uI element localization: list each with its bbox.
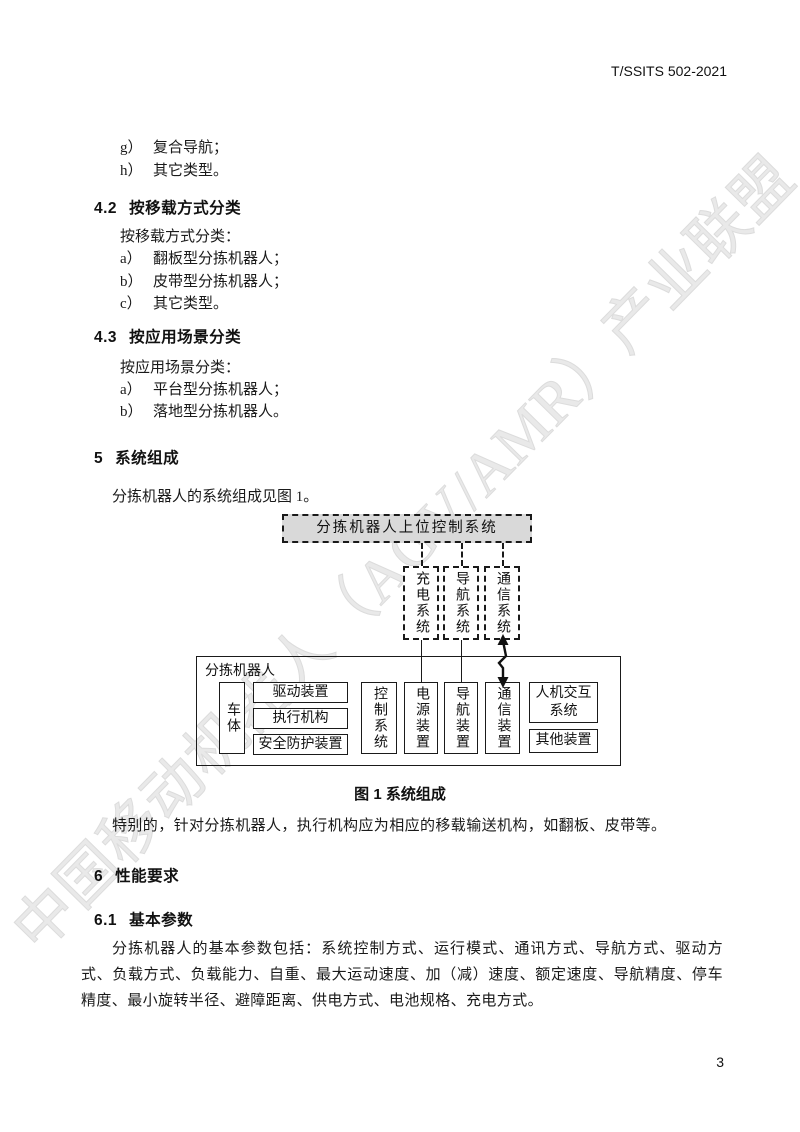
list-item-g: g）复合导航； [120,138,228,158]
actuator-box: 执行机构 [253,708,348,729]
safety-protection-box: 安全防护装置 [253,734,348,755]
list-item-a: a）翻板型分拣机器人； [120,249,288,269]
heading-title: 基本参数 [129,912,193,929]
list-text: 其它类型。 [153,296,228,312]
heading-number: 5 [94,450,103,468]
charging-system-box: 充电系统 [403,566,439,640]
list-text: 复合导航； [153,140,228,156]
hmi-system-box: 人机交互系统 [529,682,598,723]
figure-caption: 图 1 系统组成 [0,783,800,804]
navigation-system-box: 导航系统 [443,566,479,640]
control-system-box: 控制系统 [361,682,397,754]
sorting-robot-label: 分拣机器人 [205,660,275,680]
list-item-a2: a）平台型分拣机器人； [120,380,288,400]
dashed-connector-navigation [461,543,463,566]
heading-title: 系统组成 [115,450,179,467]
document-page: 中国移动机器人（AGV/AMR）产业联盟 T/SSITS 502-2021 g）… [0,0,800,1132]
vehicle-body-box: 车体 [219,682,245,754]
list-marker: b） [120,402,153,422]
communication-device-box: 通信装置 [485,682,520,754]
upper-control-system-box: 分拣机器人上位控制系统 [282,514,532,543]
dashed-connector-communication [502,543,504,566]
list-text: 翻板型分拣机器人； [153,251,288,267]
list-text: 落地型分拣机器人。 [153,404,288,420]
heading-4-2: 4.2按移载方式分类 [94,196,241,218]
list-marker: b） [120,272,153,292]
navigation-device-box: 导航装置 [444,682,478,754]
power-device-box: 电源装置 [404,682,438,754]
paragraph-4-3-intro: 按应用场景分类： [120,358,240,378]
list-item-b: b）皮带型分拣机器人； [120,272,288,292]
heading-title: 性能要求 [115,868,179,885]
heading-number: 4.2 [94,200,117,218]
list-marker: a） [120,380,153,400]
list-item-c: c）其它类型。 [120,294,228,314]
list-marker: a） [120,249,153,269]
list-text: 平台型分拣机器人； [153,382,288,398]
heading-number: 6.1 [94,912,117,930]
heading-6: 6性能要求 [94,864,179,886]
wireless-link-arrow [491,634,515,688]
paragraph-5-intro: 分拣机器人的系统组成见图 1。 [112,487,318,507]
heading-5: 5系统组成 [94,446,179,468]
heading-number: 4.3 [94,329,117,347]
heading-number: 6 [94,868,103,886]
doc-code-header: T/SSITS 502-2021 [611,63,727,79]
heading-4-3: 4.3按应用场景分类 [94,325,241,347]
list-text: 皮带型分拣机器人； [153,274,288,290]
list-marker: g） [120,138,153,158]
heading-6-1: 6.1基本参数 [94,908,193,930]
other-device-box: 其他装置 [529,729,598,753]
list-marker: c） [120,294,153,314]
paragraph-basic-parameters: 分拣机器人的基本参数包括：系统控制方式、运行模式、通讯方式、导航方式、驱动方式、… [81,936,723,1014]
heading-title: 按应用场景分类 [129,329,241,346]
heading-title: 按移载方式分类 [129,200,241,217]
list-item-b2: b）落地型分拣机器人。 [120,402,288,422]
list-text: 其它类型。 [153,163,228,179]
paragraph-4-2-intro: 按移载方式分类： [120,227,240,247]
page-number: 3 [716,1054,724,1070]
dashed-connector-charging [421,543,423,566]
paragraph-note: 特别的，针对分拣机器人，执行机构应为相应的移载输送机构，如翻板、皮带等。 [81,813,723,839]
communication-system-box: 通信系统 [484,566,520,640]
list-marker: h） [120,161,153,181]
drive-device-box: 驱动装置 [253,682,348,703]
figure-1-system-diagram: 分拣机器人上位控制系统 充电系统 导航系统 通信系统 分拣机器人 车体 驱动装置… [196,514,623,766]
list-item-h: h）其它类型。 [120,161,228,181]
